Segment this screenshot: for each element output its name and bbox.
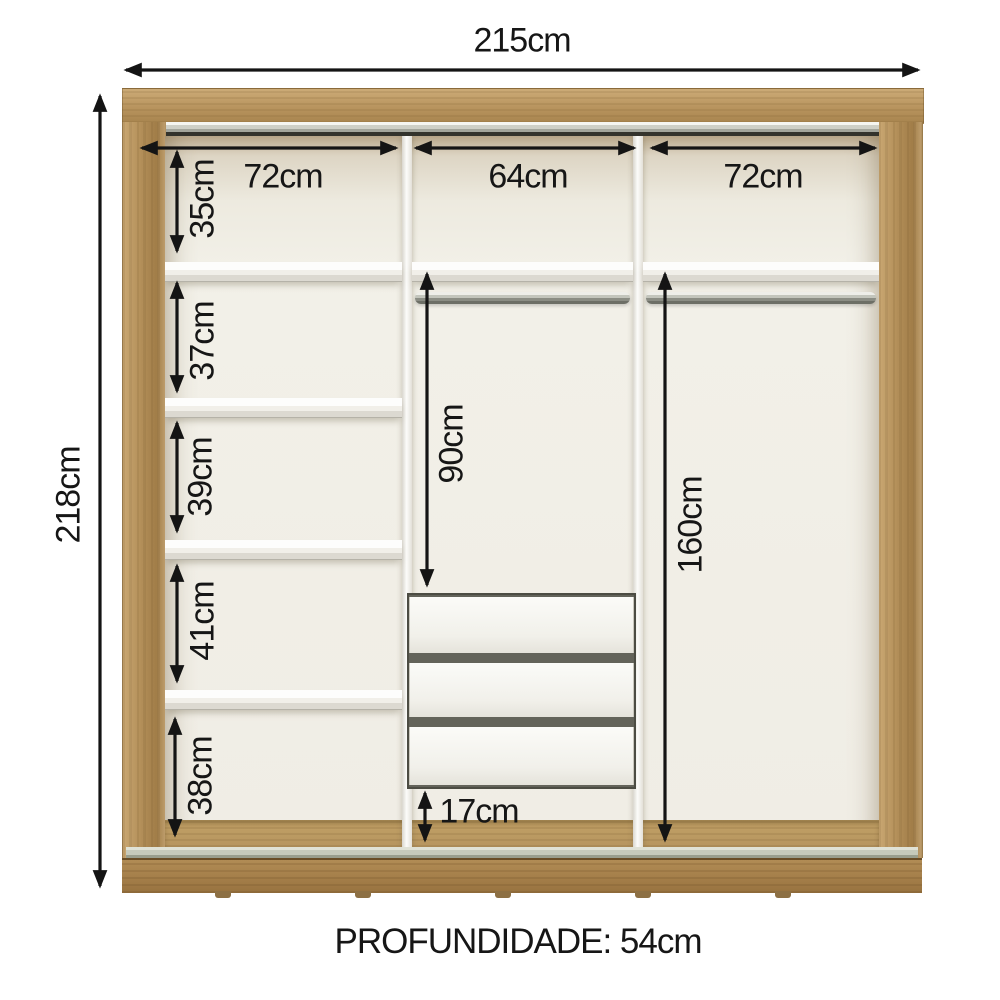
total-height-label: 218cm [50,446,89,543]
wardrobe-left-side-panel [122,122,166,858]
wardrobe-foot [495,891,511,898]
drawer-3 [409,727,634,785]
wardrobe-foot [215,891,231,898]
middle-hanging-height-label: 90cm [433,404,472,483]
gap-1-label: 35cm [184,159,223,238]
wardrobe-foot [775,891,791,898]
interior-floor [165,820,879,847]
shelf-top-middle-section [412,262,633,282]
right-hanging-height-label: 160cm [672,476,711,573]
shelf-left-3 [165,540,402,560]
divider-right [633,136,643,847]
shelf-left-2 [165,398,402,418]
shelf-left-4 [165,690,402,710]
hanging-rod-middle [415,292,630,304]
middle-section-width-label: 64cm [488,158,567,197]
sliding-door-top-rail [127,122,917,136]
wardrobe-right-side-panel [879,122,923,858]
sliding-door-bottom-track [126,847,918,858]
right-section-width-label: 72cm [723,158,802,197]
wardrobe-interior [165,136,879,847]
depth-label: PROFUNDIDADE: 54cm [334,922,701,962]
bottom-clearance-label: 17cm [439,793,518,832]
wardrobe-dimension-diagram: 215cm 218cm 72cm 64cm 72cm 35cm 37cm 39c… [0,0,1000,1000]
gap-4-label: 41cm [184,581,223,660]
gap-5-label: 38cm [182,736,221,815]
hanging-rod-right [646,292,876,304]
total-width-label: 215cm [473,22,570,61]
gap-3-label: 39cm [182,437,221,516]
wardrobe-foot [635,891,651,898]
left-section-width-label: 72cm [243,158,322,197]
shelf-top-left-section [165,262,402,282]
wardrobe-foot [355,891,371,898]
drawer-1 [409,597,634,653]
drawer-block [409,595,634,787]
wardrobe-base-panel [122,858,922,893]
drawer-2 [409,663,634,717]
shelf-top-right-section [643,262,879,282]
wardrobe-top-panel [122,88,924,124]
gap-2-label: 37cm [184,301,223,380]
